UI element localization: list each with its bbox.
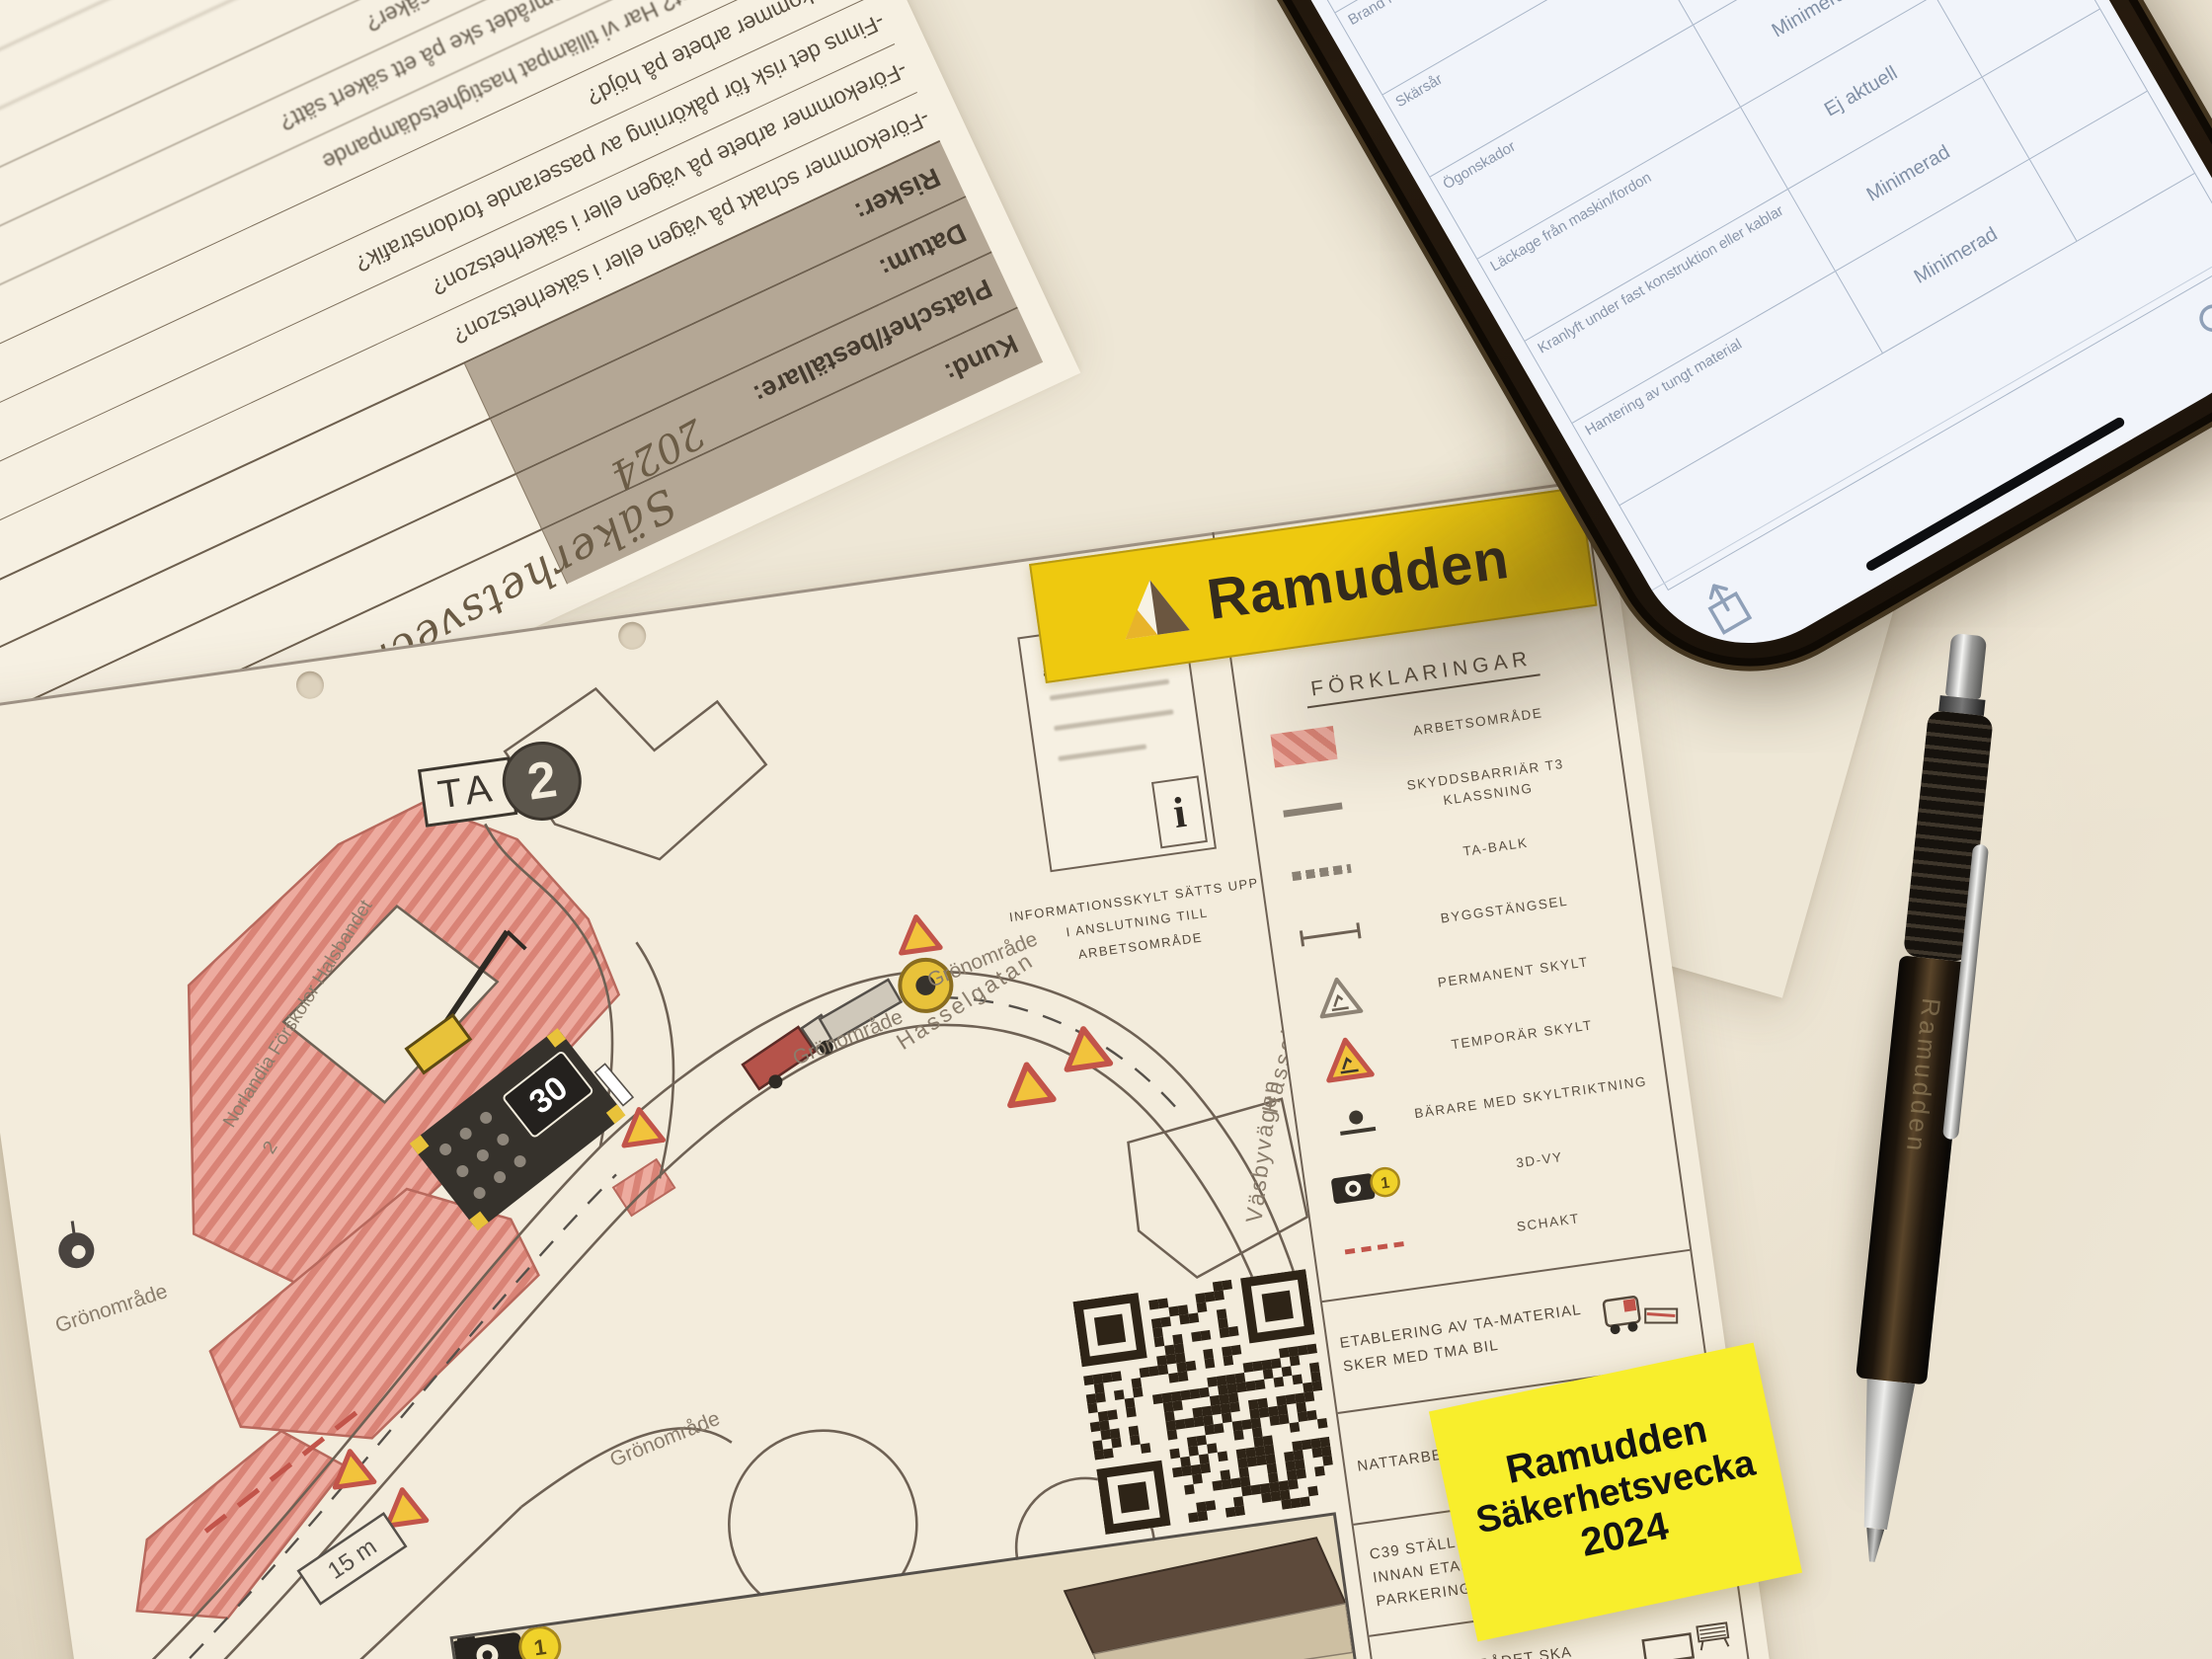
qr-code [1072,1269,1338,1535]
tma-truck-icon [1593,1282,1690,1345]
legend-label: SCHAKT [1422,1196,1675,1251]
fence-panels-icon [1640,1620,1736,1659]
red-dashed-icon [1325,1238,1424,1257]
sign-gray-triangle-icon [1288,969,1391,1025]
pen-barrel: Ramudden [1856,955,1971,1384]
ta-label: TA [418,756,517,828]
sign-yellow-triangle-icon [1296,1029,1400,1089]
carrier-dot-icon [1305,1102,1407,1144]
pen-tip [1863,1528,1884,1563]
share-icon[interactable] [1693,571,1762,646]
svg-text:Grönområde: Grönområde [606,1407,723,1471]
camera-3d-icon: 1 [1314,1159,1417,1211]
camera-marker [54,1219,96,1271]
pen-plunger [1945,633,1987,699]
workzone-areas [32,775,726,1630]
plan-note-text: ARBETSOMRÅDET SKA HÄGNAS IN [1385,1631,1646,1659]
scale-box: 15 m [298,1514,406,1604]
pen-brand-text: Ramudden [1900,996,1946,1156]
search-icon[interactable] [2188,290,2212,354]
svg-text:Grönområde: Grönområde [52,1280,170,1337]
plan-note-text: ETABLERING AV TA-MATERIAL SKER MED TMA B… [1338,1297,1599,1380]
pen-cone [1847,1379,1919,1532]
